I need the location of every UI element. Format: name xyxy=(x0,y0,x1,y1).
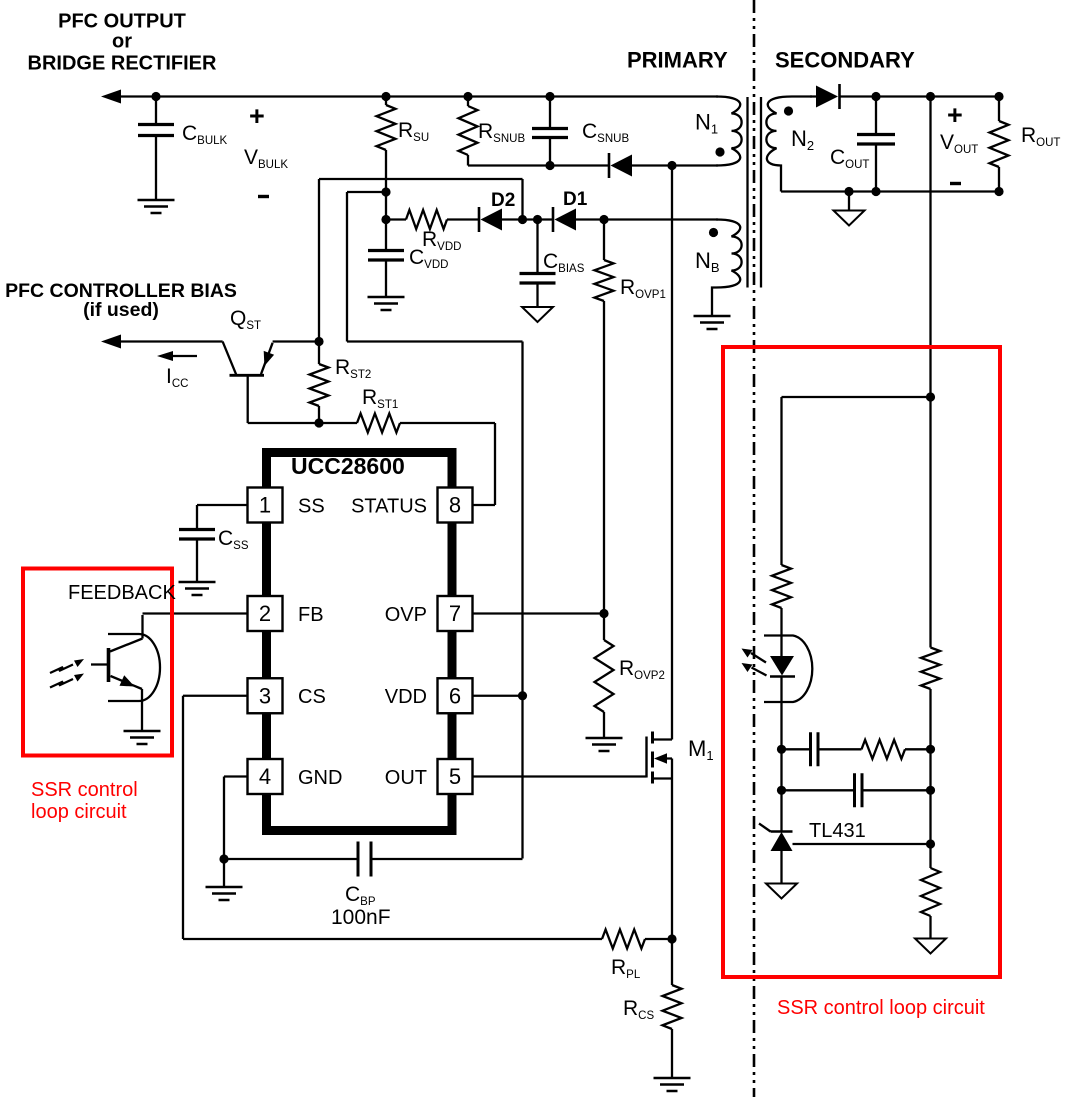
svg-text:D2: D2 xyxy=(491,190,515,211)
svg-text:3: 3 xyxy=(259,683,271,708)
svg-text:D1: D1 xyxy=(563,189,588,210)
svg-text:PFC OUTPUT: PFC OUTPUT xyxy=(58,11,186,33)
svg-text:PRIMARY: PRIMARY xyxy=(627,48,728,73)
svg-text:VDD: VDD xyxy=(385,686,427,708)
svg-text:STATUS: STATUS xyxy=(351,496,427,518)
svg-text:4: 4 xyxy=(259,764,271,789)
svg-text:or: or xyxy=(112,31,132,53)
svg-text:7: 7 xyxy=(449,601,461,626)
svg-text:CS: CS xyxy=(298,686,326,708)
svg-text:SS: SS xyxy=(298,496,325,518)
svg-text:100nF: 100nF xyxy=(331,906,391,929)
svg-text:5: 5 xyxy=(449,764,461,789)
svg-text:FEEDBACK: FEEDBACK xyxy=(68,582,176,604)
svg-text:SSR control loop circuit: SSR control loop circuit xyxy=(777,997,985,1019)
svg-text:(if used): (if used) xyxy=(83,299,159,321)
svg-text:+: + xyxy=(249,101,265,131)
svg-text:+: + xyxy=(947,100,963,130)
svg-text:8: 8 xyxy=(449,493,461,518)
svg-text:GND: GND xyxy=(298,767,342,789)
svg-text:2: 2 xyxy=(259,601,271,626)
svg-text:SSR control: SSR control xyxy=(31,779,138,801)
svg-text:OVP: OVP xyxy=(385,604,427,626)
svg-text:TL431: TL431 xyxy=(809,820,866,842)
svg-text:UCC28600: UCC28600 xyxy=(291,453,405,479)
svg-text:BRIDGE RECTIFIER: BRIDGE RECTIFIER xyxy=(28,53,217,75)
svg-text:OUT: OUT xyxy=(385,767,427,789)
svg-text:1: 1 xyxy=(259,493,271,518)
svg-text:SECONDARY: SECONDARY xyxy=(775,48,915,73)
svg-text:loop circuit: loop circuit xyxy=(31,801,127,823)
svg-text:6: 6 xyxy=(449,683,461,708)
svg-text:FB: FB xyxy=(298,604,324,626)
